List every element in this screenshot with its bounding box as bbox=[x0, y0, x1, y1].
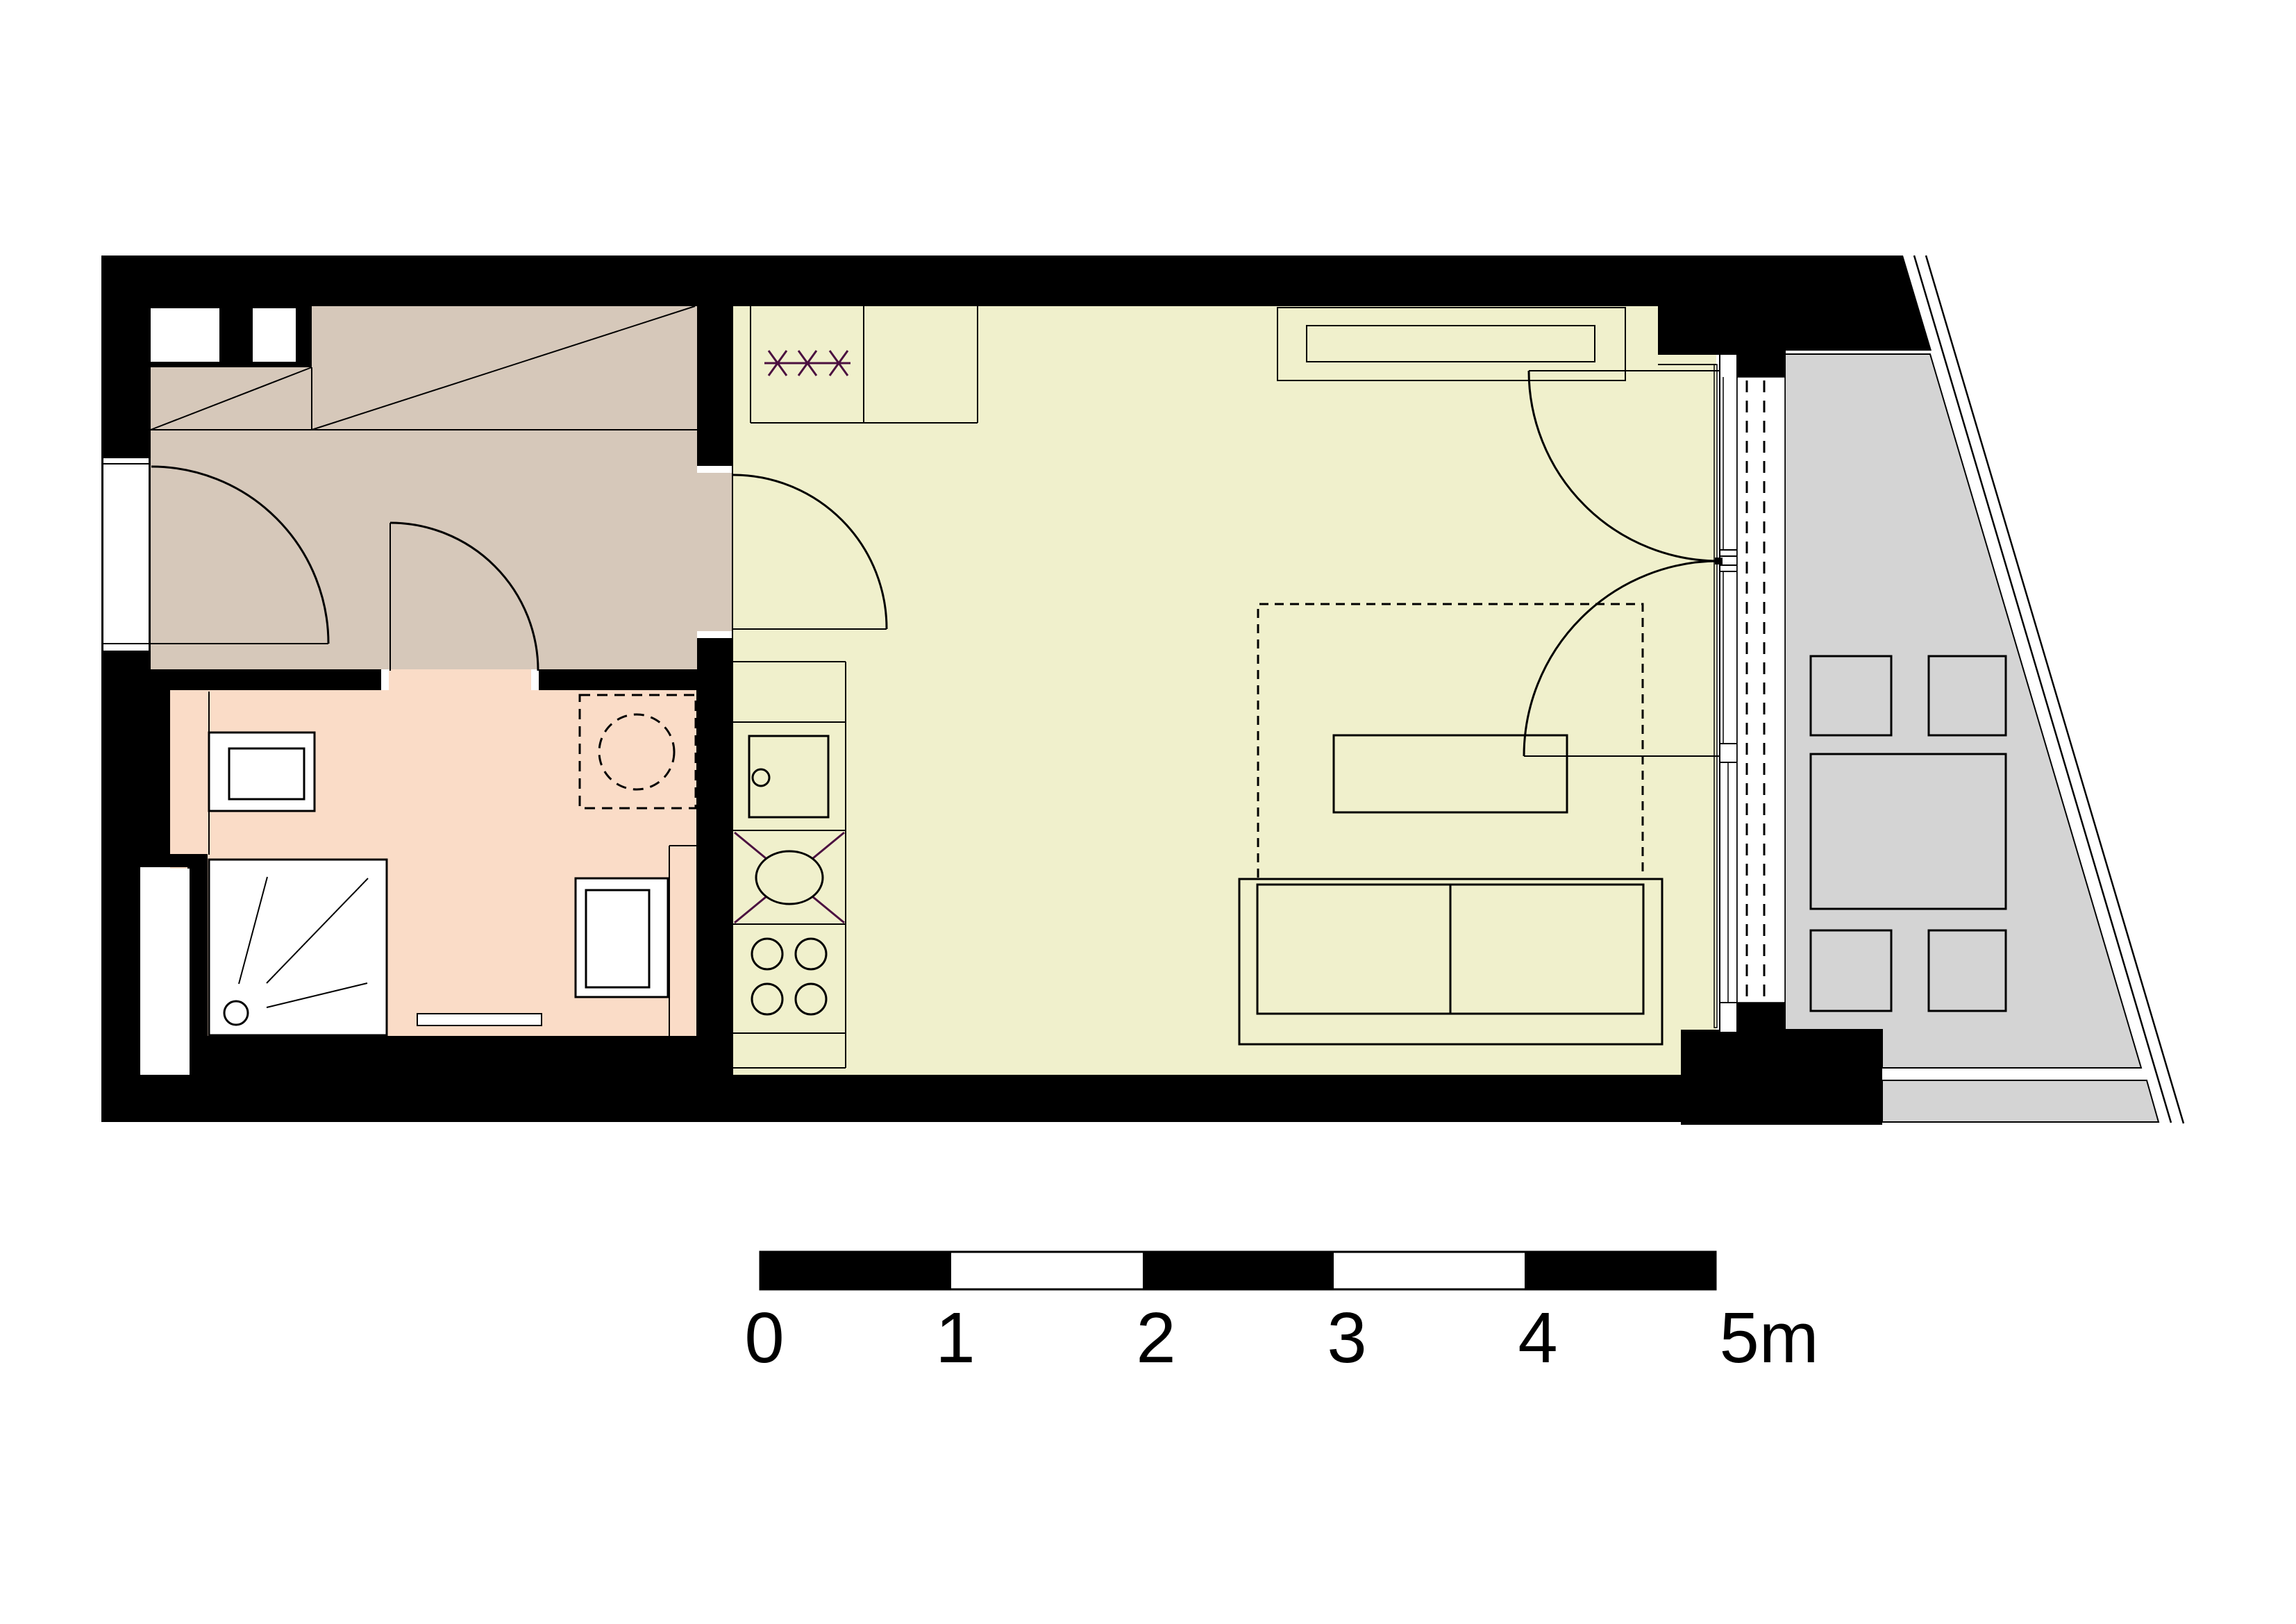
svg-text:5m: 5m bbox=[1719, 1298, 1818, 1378]
svg-text:3: 3 bbox=[1327, 1298, 1366, 1378]
svg-text:1: 1 bbox=[935, 1298, 975, 1378]
svg-text:2: 2 bbox=[1136, 1298, 1175, 1378]
svg-text:0: 0 bbox=[744, 1298, 784, 1378]
svg-text:4: 4 bbox=[1518, 1298, 1557, 1378]
